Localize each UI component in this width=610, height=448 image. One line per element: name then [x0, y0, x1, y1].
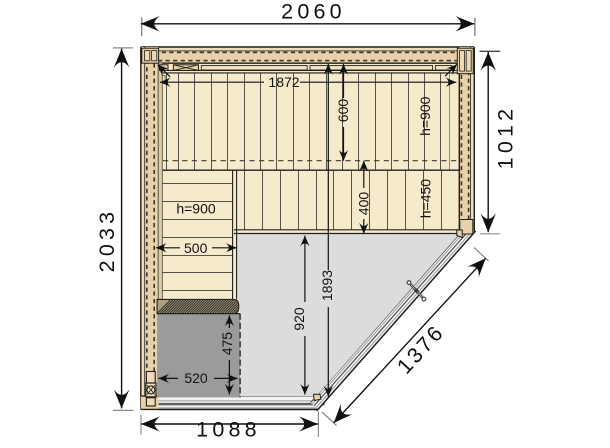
svg-text:1893: 1893 [319, 270, 335, 301]
svg-text:2060: 2060 [281, 0, 346, 24]
svg-text:2033: 2033 [95, 208, 119, 273]
svg-text:h=450: h=450 [418, 179, 434, 219]
svg-text:475: 475 [219, 332, 235, 356]
svg-text:h=900: h=900 [417, 96, 433, 136]
svg-text:920: 920 [291, 307, 307, 331]
svg-text:1012: 1012 [494, 105, 518, 170]
svg-text:500: 500 [184, 240, 208, 256]
svg-text:1872: 1872 [268, 74, 299, 90]
svg-text:1088: 1088 [196, 418, 261, 442]
svg-text:h=900: h=900 [176, 201, 216, 217]
svg-text:600: 600 [335, 99, 351, 123]
svg-text:400: 400 [355, 192, 371, 216]
svg-text:520: 520 [184, 370, 208, 386]
